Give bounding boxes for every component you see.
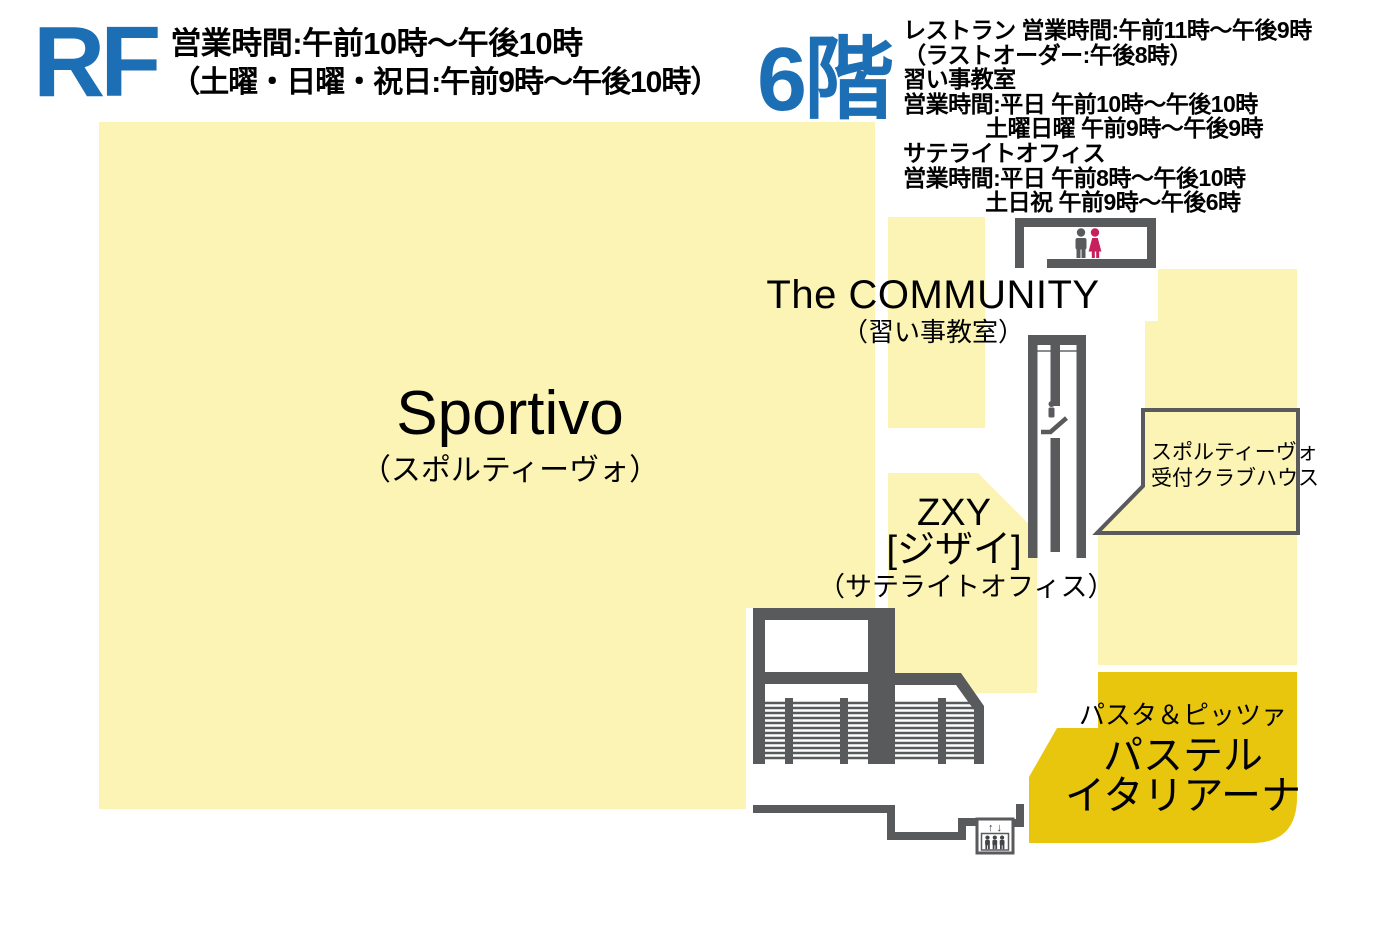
sportivo-label: Sportivo （スポルティーヴォ） xyxy=(295,382,725,487)
rf-floor-label: RF xyxy=(33,20,156,105)
reception-line1: スポルティーヴォ xyxy=(1151,440,1301,466)
reception-line2: 受付クラブハウス xyxy=(1151,466,1301,492)
restroom-wall-left xyxy=(1015,218,1024,268)
stairs-post xyxy=(840,698,848,764)
sportivo-name: Sportivo xyxy=(295,382,725,446)
restroom xyxy=(1015,218,1156,268)
stairs-post xyxy=(938,698,946,764)
f6-hours-line: 土日祝 午前9時～午後6時 xyxy=(903,190,1312,215)
restroom-wall-top xyxy=(1015,218,1156,227)
pastel-name-line1: パステル xyxy=(1062,736,1304,776)
zxy-reading: [ジザイ] xyxy=(818,531,1090,570)
community-category: （習い事教室） xyxy=(733,318,1133,346)
f6-hours-line: 習い事教室 xyxy=(903,67,1312,92)
escalator-icon xyxy=(1041,401,1067,432)
stairs-left-wall xyxy=(753,608,765,764)
f6-floor-label: 6階 xyxy=(757,40,891,121)
rf-hours-line2: （土曜・日曜・祝日:午前9時～午後10時） xyxy=(170,64,719,102)
restroom-women-icon xyxy=(1089,228,1102,258)
zxy-label: ZXY [ジザイ] （サテライトオフィス） xyxy=(818,496,1090,602)
corridor-wall-left xyxy=(753,809,977,836)
f6-hours-line: サテライトオフィス xyxy=(903,141,1312,166)
reception-label: スポルティーヴォ 受付クラブハウス xyxy=(1151,440,1301,492)
stairs-post xyxy=(785,698,793,764)
stairs-center-pillar xyxy=(868,608,895,764)
f6-header: 6階 レストラン 営業時間:午前11時～午後9時 （ラストオーダー:午後8時） … xyxy=(757,16,1312,215)
f6-hours-line: レストラン 営業時間:午前11時～午後9時 xyxy=(903,18,1312,43)
pastel-italiana-label: パスタ＆ピッツァ パステル イタリアーナ xyxy=(1062,702,1304,816)
restroom-wall-bottom xyxy=(1047,259,1156,268)
f6-hours-line: 営業時間:平日 午前10時～午後10時 xyxy=(903,92,1312,117)
elevator: ↑ ↓ xyxy=(977,819,1013,853)
pastel-name-line2: イタリアーナ xyxy=(1062,776,1304,816)
community-label: The COMMUNITY （習い事教室） xyxy=(733,276,1133,346)
f6-hours: レストラン 営業時間:午前11時～午後9時 （ラストオーダー:午後8時） 習い事… xyxy=(903,18,1312,215)
sportivo-reading: （スポルティーヴォ） xyxy=(295,455,725,487)
stairs-steps-left xyxy=(765,703,868,758)
zxy-name: ZXY xyxy=(818,496,1090,531)
elevator-arrows-icon: ↑ ↓ xyxy=(988,822,1002,834)
floor-map: ↑ ↓ xyxy=(0,0,1400,930)
community-name: The COMMUNITY xyxy=(733,276,1133,314)
f6-hours-line: （ラストオーダー:午後8時） xyxy=(903,43,1312,68)
f6-hours-line: 土曜日曜 午前9時～午後9時 xyxy=(903,116,1312,141)
restroom-men-icon xyxy=(1076,228,1087,258)
rf-header: RF 営業時間:午前10時～午後10時 （土曜・日曜・祝日:午前9時～午後10時… xyxy=(33,20,719,105)
stairs-mid-wall xyxy=(753,672,870,684)
escalator-center-rail-top xyxy=(1051,345,1061,406)
f6-hours-line: 営業時間:平日 午前8時～午後10時 xyxy=(903,166,1312,191)
pastel-category: パスタ＆ピッツァ xyxy=(1062,702,1304,729)
rf-hours: 営業時間:午前10時～午後10時 （土曜・日曜・祝日:午前9時～午後10時） xyxy=(170,24,719,102)
rf-hours-line1: 営業時間:午前10時～午後10時 xyxy=(170,24,719,64)
zxy-category: （サテライトオフィス） xyxy=(818,573,1090,602)
